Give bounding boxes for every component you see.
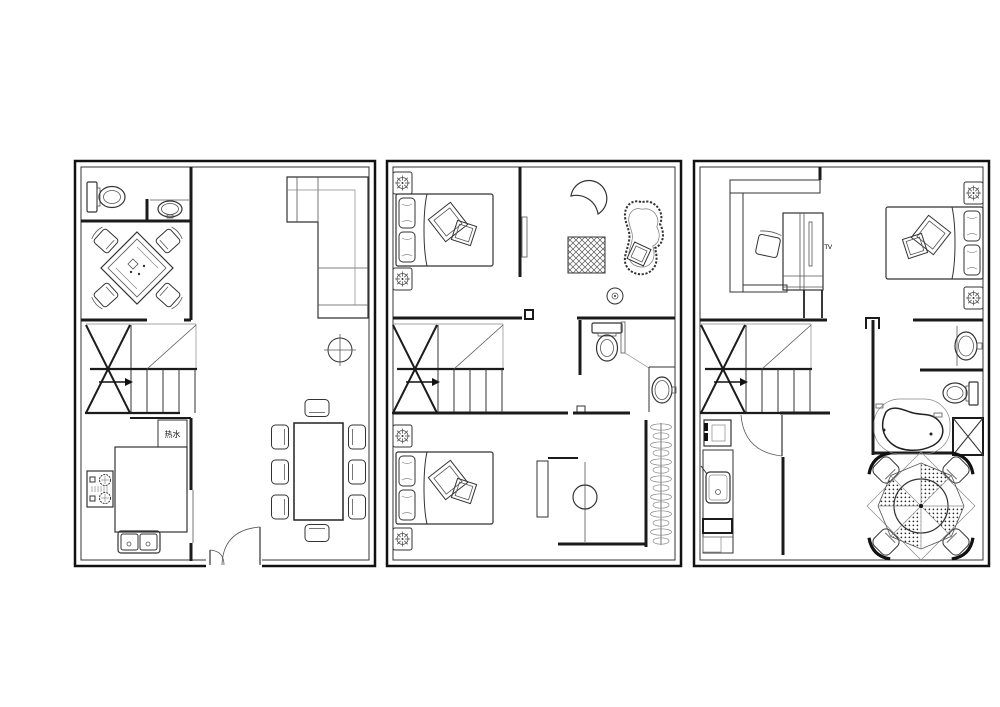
toilet-icon [943, 382, 978, 405]
wash-basin-icon [955, 326, 982, 366]
double-bed [396, 194, 493, 266]
gas-cooktop-icon [87, 471, 113, 507]
dining-chair [272, 425, 289, 449]
floor-plan-level-3: TV [694, 161, 989, 566]
dining-chair [349, 425, 366, 449]
floorplan-canvas: 热水 [0, 0, 1000, 707]
hatched-rug [568, 237, 605, 273]
exterior-walls [694, 161, 989, 566]
nightstand-lamp-icon [393, 172, 412, 194]
spa-bathtub [874, 399, 950, 454]
floorplan-sheet: 热水 [0, 0, 1000, 707]
wash-basin-icon [649, 367, 676, 412]
nightstand-lamp-icon [964, 287, 983, 309]
double-bed [886, 207, 983, 279]
dining-chair [272, 460, 289, 484]
fluffy-chaise [625, 201, 663, 274]
square-chair [155, 282, 184, 311]
patio-chair [865, 449, 904, 488]
entry-double-door [206, 527, 262, 569]
interior-walls [81, 167, 193, 561]
sliding-door-leaf [522, 217, 527, 257]
patio-chair [938, 524, 977, 563]
floor-plan-level-2 [387, 161, 681, 566]
staircase [700, 324, 812, 413]
exterior-walls [387, 161, 681, 566]
dining-chair [349, 460, 366, 484]
staircase [85, 324, 197, 413]
wash-basin-icon [158, 201, 182, 218]
double-bed [396, 452, 493, 524]
square-chair [90, 282, 119, 311]
l-shaped-sofa [287, 177, 368, 318]
double-bowl-sink-icon [118, 531, 160, 553]
nightstand-lamp-icon [964, 182, 983, 204]
square-chair [90, 225, 119, 254]
water-heater-box: 热水 [158, 420, 187, 447]
ceiling-light-icon [607, 288, 623, 304]
shower-platform [953, 418, 983, 455]
staircase [392, 324, 504, 413]
desk-chair [755, 230, 782, 259]
ceiling-light-icon [324, 334, 356, 366]
water-heater-label: 热水 [165, 429, 181, 439]
parasol-umbrella [878, 463, 964, 549]
tv-label: TV [823, 243, 832, 251]
interior-walls [393, 167, 675, 547]
crescent-pouf [571, 181, 607, 214]
swing-door [741, 415, 782, 456]
square-chair [155, 225, 184, 254]
dining-chair [272, 495, 289, 519]
kitchenette-counter-sink [701, 450, 733, 553]
nightstand-lamp-icon [393, 528, 412, 550]
shower-glass-line [625, 353, 649, 368]
dressing-desk [537, 461, 597, 542]
nightstand-lamp-icon [393, 268, 412, 290]
toilet-icon [592, 323, 622, 361]
dining-chair [305, 400, 329, 417]
dining-chair [305, 525, 329, 542]
parasol-dining-set [865, 449, 977, 563]
nightstand-lamp-icon [393, 425, 412, 447]
side-cabinet [704, 420, 731, 446]
dining-chair [349, 495, 366, 519]
toilet-icon [87, 182, 125, 212]
hanging-clothes-rail [651, 423, 672, 545]
l-shaped-desk [730, 180, 820, 292]
dining-table [294, 423, 343, 520]
floor-plan-level-1: 热水 [75, 161, 375, 569]
tv-wardrobe-cabinet: TV [783, 213, 833, 318]
kitchen-island [115, 447, 187, 532]
